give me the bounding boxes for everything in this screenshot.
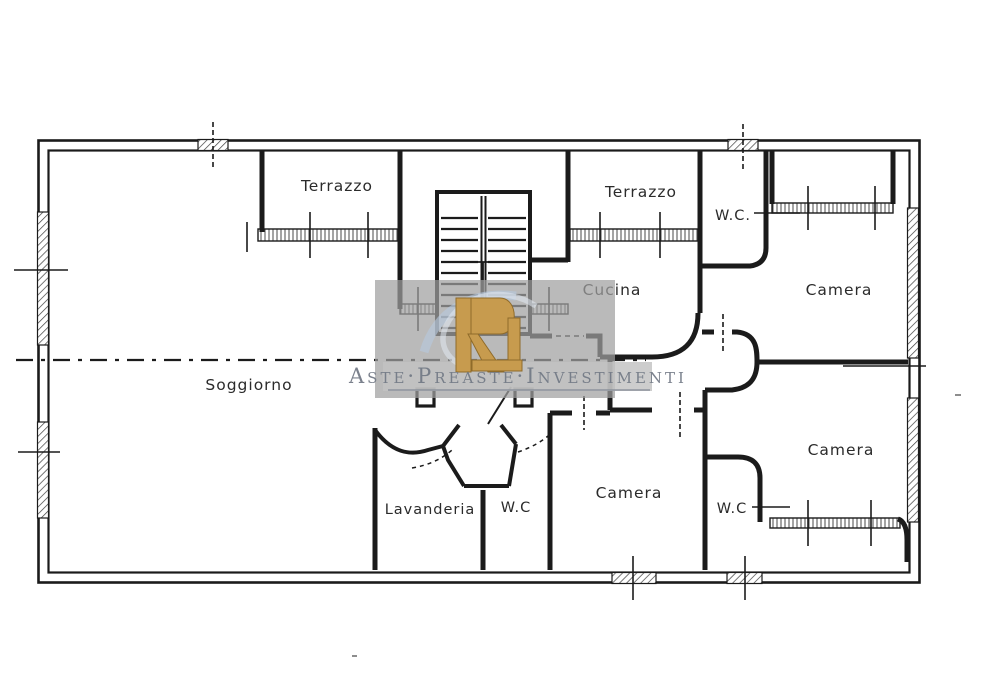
scan-speck — [352, 655, 357, 657]
floor-plan-drawing: Terrazzo Terrazzo W.C. Cucina Camera Sog… — [0, 0, 1002, 682]
room-label-lavanderia: Lavanderia — [385, 502, 476, 518]
door-swing-right — [518, 436, 548, 452]
window-left-upper — [38, 212, 49, 345]
floor-plan-page: Terrazzo Terrazzo W.C. Cucina Camera Sog… — [0, 0, 1002, 682]
room-label-terrazzo-right: Terrazzo — [604, 183, 677, 201]
wall-pentagon-left-top — [443, 425, 459, 446]
room-label-camera-bottom-center: Camera — [596, 484, 663, 502]
room-label-wc-bottom: W.C — [717, 501, 747, 517]
room-label-soggiorno: Soggiorno — [205, 376, 292, 394]
sill-terrazzo-left — [258, 229, 400, 241]
window-right-lower — [908, 398, 919, 522]
scan-speck — [955, 394, 961, 396]
room-label-wc-center: W.C — [501, 500, 531, 516]
room-label-terrazzo-left: Terrazzo — [300, 177, 373, 195]
window-right-upper — [908, 208, 919, 358]
brand-text: Aste·Preaste·Investimenti — [348, 364, 687, 388]
sill-camera-bottom-right — [770, 518, 900, 528]
sill-terrazzo-right — [570, 229, 700, 241]
window-left-lower — [38, 422, 49, 518]
wall-pentagon-right-top — [501, 425, 516, 444]
wall-vestibule-scurve — [705, 332, 757, 390]
wall-pentagon-left — [443, 446, 464, 486]
room-label-wc-top: W.C. — [715, 208, 751, 224]
wall-lavanderia-curve — [375, 430, 443, 453]
window-bottom-camera — [612, 573, 656, 584]
room-label-camera-top-right: Camera — [806, 281, 873, 299]
wall-pentagon-right — [509, 444, 516, 486]
room-label-camera-bottom-right: Camera — [808, 441, 875, 459]
